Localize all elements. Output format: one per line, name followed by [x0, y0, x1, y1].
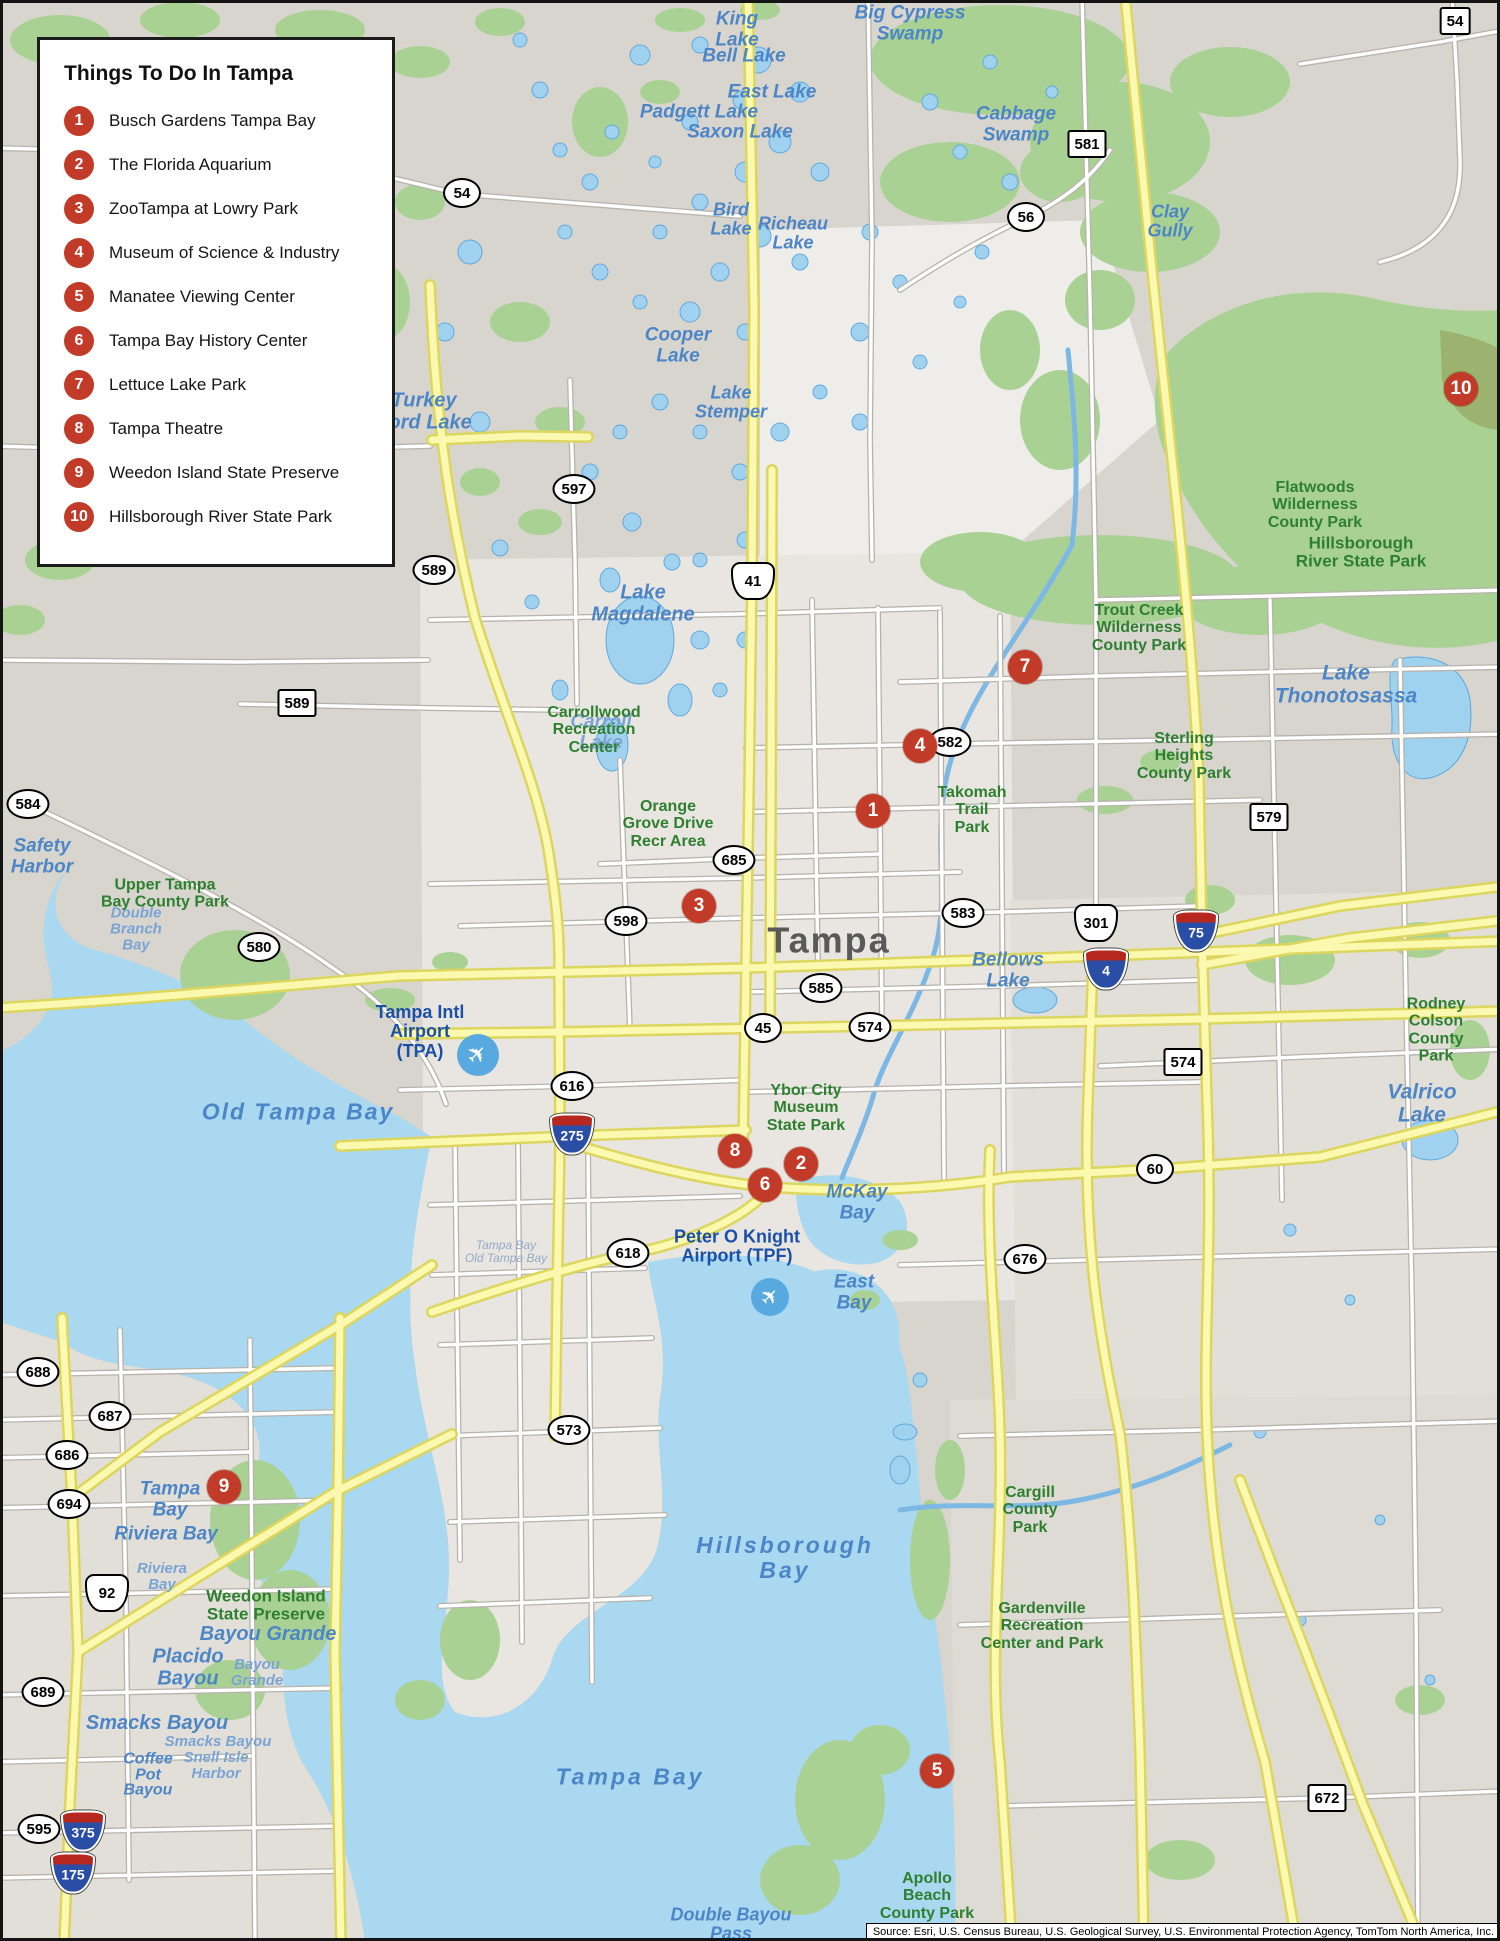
airport-icon: ✈ — [751, 1278, 789, 1316]
poi-marker-3: 3 — [682, 889, 716, 923]
poi-marker-7: 7 — [1008, 650, 1042, 684]
route-shield-oval-583: 583 — [941, 898, 984, 928]
label-gardenville-recreation-center-and-park: Gardenville Recreation Center and Park — [981, 1600, 1104, 1652]
route-shield-oval-60: 60 — [1136, 1154, 1174, 1184]
label-padgett-lake: Padgett Lake — [640, 103, 758, 124]
legend-item-3: 3ZooTampa at Lowry Park — [64, 194, 372, 224]
legend-item-5: 5Manatee Viewing Center — [64, 282, 372, 312]
label-saxon-lake: Saxon Lake — [687, 123, 793, 144]
legend-item-8: 8Tampa Theatre — [64, 414, 372, 444]
route-shield-oval-580: 580 — [237, 932, 280, 962]
label-old-tampa-bay: Old Tampa Bay — [202, 1100, 395, 1125]
label-flatwoods-wilderness-county-park: Flatwoods Wilderness County Park — [1268, 479, 1362, 531]
label-bellows-lake: Bellows Lake — [972, 950, 1044, 991]
label-rodney-colson-county-park: Rodney Colson County Park — [1404, 995, 1468, 1064]
legend-item-10: 10Hillsborough River State Park — [64, 502, 372, 532]
label-takomah-trail-park: Takomah Trail Park — [937, 784, 1006, 836]
airport-icon: ✈ — [457, 1034, 499, 1076]
route-shield-oval-688: 688 — [16, 1357, 59, 1387]
label-big-cypress-swamp: Big Cypress Swamp — [855, 3, 966, 44]
route-shield-rect-54: 54 — [1440, 7, 1471, 35]
poi-marker-9: 9 — [207, 1470, 241, 1504]
label-lake-magdalene: Lake Magdalene — [591, 582, 694, 625]
source-attribution: Source: Esri, U.S. Census Bureau, U.S. G… — [866, 1923, 1500, 1941]
poi-marker-8: 8 — [718, 1134, 752, 1168]
label-ybor-city-museum-state-park: Ybor City Museum State Park — [767, 1082, 845, 1134]
route-shield-oval-687: 687 — [88, 1401, 131, 1431]
label-tampa-bay: Tampa Bay — [556, 1765, 705, 1790]
legend-item-label: Tampa Theatre — [109, 419, 223, 439]
label-valrico-lake: Valrico Lake — [1387, 1081, 1456, 1126]
legend-item-badge: 9 — [64, 458, 94, 488]
route-shield-us-301: 301 — [1074, 904, 1118, 942]
poi-marker-4: 4 — [903, 729, 937, 763]
route-shield-oval-56: 56 — [1007, 202, 1045, 232]
label-sterling-heights-county-park: Sterling Heights County Park — [1137, 730, 1231, 782]
route-shield-us-92: 92 — [85, 1574, 129, 1612]
route-shield-oval-54: 54 — [443, 178, 481, 208]
legend-item-badge: 4 — [64, 238, 94, 268]
legend-title: Things To Do In Tampa — [64, 62, 372, 86]
route-shield-oval-616: 616 — [550, 1071, 593, 1101]
label-snell-isle-harbor: Snell Isle Harbor — [183, 1750, 248, 1782]
route-shield-oval-685: 685 — [712, 845, 755, 875]
label-cargill-county-park: Cargill County Park — [1002, 1484, 1057, 1536]
label-smacks-bayou: Smacks Bayou — [86, 1713, 228, 1735]
legend-item-badge: 5 — [64, 282, 94, 312]
route-shield-oval-676: 676 — [1003, 1244, 1046, 1274]
route-shield-oval-595: 595 — [17, 1814, 60, 1844]
route-shield-oval-574: 574 — [848, 1012, 891, 1042]
label-lake-thonotosassa: Lake Thonotosassa — [1275, 662, 1417, 707]
route-shield-oval-686: 686 — [45, 1440, 88, 1470]
route-shield-rect-574: 574 — [1163, 1048, 1202, 1076]
label-tampa-intl-airport-tpa: Tampa Intl Airport (TPA) — [376, 1003, 465, 1061]
label-coffee-pot-bayou: Coffee Pot Bayou — [123, 1751, 173, 1798]
label-cooper-lake: Cooper Lake — [645, 325, 712, 366]
label-upper-tampa-bay-county-park: Upper Tampa Bay County Park — [101, 877, 229, 912]
legend-item-badge: 1 — [64, 106, 94, 136]
legend-item-badge: 8 — [64, 414, 94, 444]
legend-item-badge: 2 — [64, 150, 94, 180]
route-shield-rect-581: 581 — [1067, 130, 1106, 158]
route-shield-oval-589: 589 — [412, 555, 455, 585]
label-peter-o-knight-airport-tpf: Peter O Knight Airport (TPF) — [674, 1228, 800, 1267]
poi-marker-6: 6 — [748, 1168, 782, 1202]
poi-marker-2: 2 — [784, 1147, 818, 1181]
label-weedon-island-state-preserve: Weedon Island State Preserve — [206, 1588, 326, 1625]
legend-item-badge: 10 — [64, 502, 94, 532]
label-riviera-bay: Riviera Bay — [137, 1561, 187, 1593]
legend-item-label: Lettuce Lake Park — [109, 375, 246, 395]
route-shield-rect-579: 579 — [1249, 803, 1288, 831]
poi-marker-5: 5 — [920, 1754, 954, 1788]
airplane-icon: ✈ — [756, 1283, 784, 1311]
label-clay-gully: Clay Gully — [1147, 203, 1192, 242]
label-safety-harbor: Safety Harbor — [11, 836, 73, 877]
tampa-attractions-map: TampaKing LakeBell LakeEast LakePadgett … — [0, 0, 1500, 1941]
route-shield-oval-45: 45 — [744, 1013, 782, 1043]
legend-item-label: Manatee Viewing Center — [109, 287, 295, 307]
airplane-icon: ✈ — [462, 1039, 493, 1070]
label-bell-lake: Bell Lake — [702, 47, 785, 68]
legend-panel: Things To Do In Tampa 1Busch Gardens Tam… — [37, 37, 395, 567]
label-hillsborough-bay: Hillsborough Bay — [696, 1533, 874, 1583]
label-trout-creek-wilderness-county-park: Trout Creek Wilderness County Park — [1092, 602, 1186, 654]
label-carrollwood-recreation-center: Carrollwood Recreation Center — [547, 704, 640, 756]
route-shield-oval-618: 618 — [606, 1238, 649, 1268]
label-richeau-lake: Richeau Lake — [758, 215, 828, 254]
route-shield-oval-598: 598 — [604, 906, 647, 936]
label-mckay-bay: McKay Bay — [826, 1182, 887, 1223]
legend-item-label: Hillsborough River State Park — [109, 507, 332, 527]
legend-item-label: Museum of Science & Industry — [109, 243, 340, 263]
route-shield-rect-589: 589 — [277, 689, 316, 717]
label-placido-bayou: Placido Bayou — [152, 1646, 223, 1689]
route-shield-oval-584: 584 — [6, 789, 49, 819]
route-shield-oval-597: 597 — [552, 474, 595, 504]
legend-item-7: 7Lettuce Lake Park — [64, 370, 372, 400]
label-double-branch-bay: Double Branch Bay — [110, 906, 162, 955]
label-apollo-beach-county-park: Apollo Beach County Park — [880, 1870, 974, 1922]
label-smacks-bayou: Smacks Bayou — [165, 1734, 272, 1750]
label-double-bayou-pass: Double Bayou Pass — [670, 1906, 791, 1941]
label-bayou-grande: Bayou Grande — [231, 1657, 284, 1689]
label-tampa-bay-old-tampa-bay: Tampa Bay Old Tampa Bay — [465, 1239, 547, 1265]
label-bayou-grande: Bayou Grande — [200, 1624, 337, 1646]
route-shield-oval-585: 585 — [799, 973, 842, 1003]
route-shield-oval-694: 694 — [47, 1489, 90, 1519]
legend-item-4: 4Museum of Science & Industry — [64, 238, 372, 268]
route-shield-oval-689: 689 — [21, 1677, 64, 1707]
label-lake-stemper: Lake Stemper — [695, 384, 767, 423]
legend-item-1: 1Busch Gardens Tampa Bay — [64, 106, 372, 136]
label-cabbage-swamp: Cabbage Swamp — [976, 104, 1056, 145]
poi-marker-10: 10 — [1444, 372, 1478, 406]
legend-item-label: Weedon Island State Preserve — [109, 463, 339, 483]
label-tampa-bay: Tampa Bay — [140, 1479, 201, 1520]
legend-item-badge: 6 — [64, 326, 94, 356]
label-east-bay: East Bay — [834, 1272, 874, 1313]
legend-item-label: Tampa Bay History Center — [109, 331, 307, 351]
label-orange-grove-drive-recr-area: Orange Grove Drive Recr Area — [623, 798, 714, 850]
label-bird-lake: Bird Lake — [710, 201, 751, 240]
route-shield-oval-573: 573 — [547, 1415, 590, 1445]
legend-item-label: The Florida Aquarium — [109, 155, 272, 175]
legend-item-badge: 7 — [64, 370, 94, 400]
legend-item-2: 2The Florida Aquarium — [64, 150, 372, 180]
legend-item-badge: 3 — [64, 194, 94, 224]
legend-item-label: ZooTampa at Lowry Park — [109, 199, 298, 219]
legend-item-label: Busch Gardens Tampa Bay — [109, 111, 316, 131]
label-tampa: Tampa — [767, 922, 890, 961]
legend-list: 1Busch Gardens Tampa Bay2The Florida Aqu… — [64, 106, 372, 532]
legend-item-6: 6Tampa Bay History Center — [64, 326, 372, 356]
label-riviera-bay: Riviera Bay — [114, 1525, 218, 1546]
route-shield-rect-672: 672 — [1307, 1784, 1346, 1812]
label-east-lake: East Lake — [728, 83, 817, 104]
label-hillsborough-river-state-park: Hillsborough River State Park — [1296, 535, 1426, 572]
legend-item-9: 9Weedon Island State Preserve — [64, 458, 372, 488]
route-shield-us-41: 41 — [731, 562, 775, 600]
poi-marker-1: 1 — [856, 794, 890, 828]
label-king-lake: King Lake — [715, 9, 758, 50]
